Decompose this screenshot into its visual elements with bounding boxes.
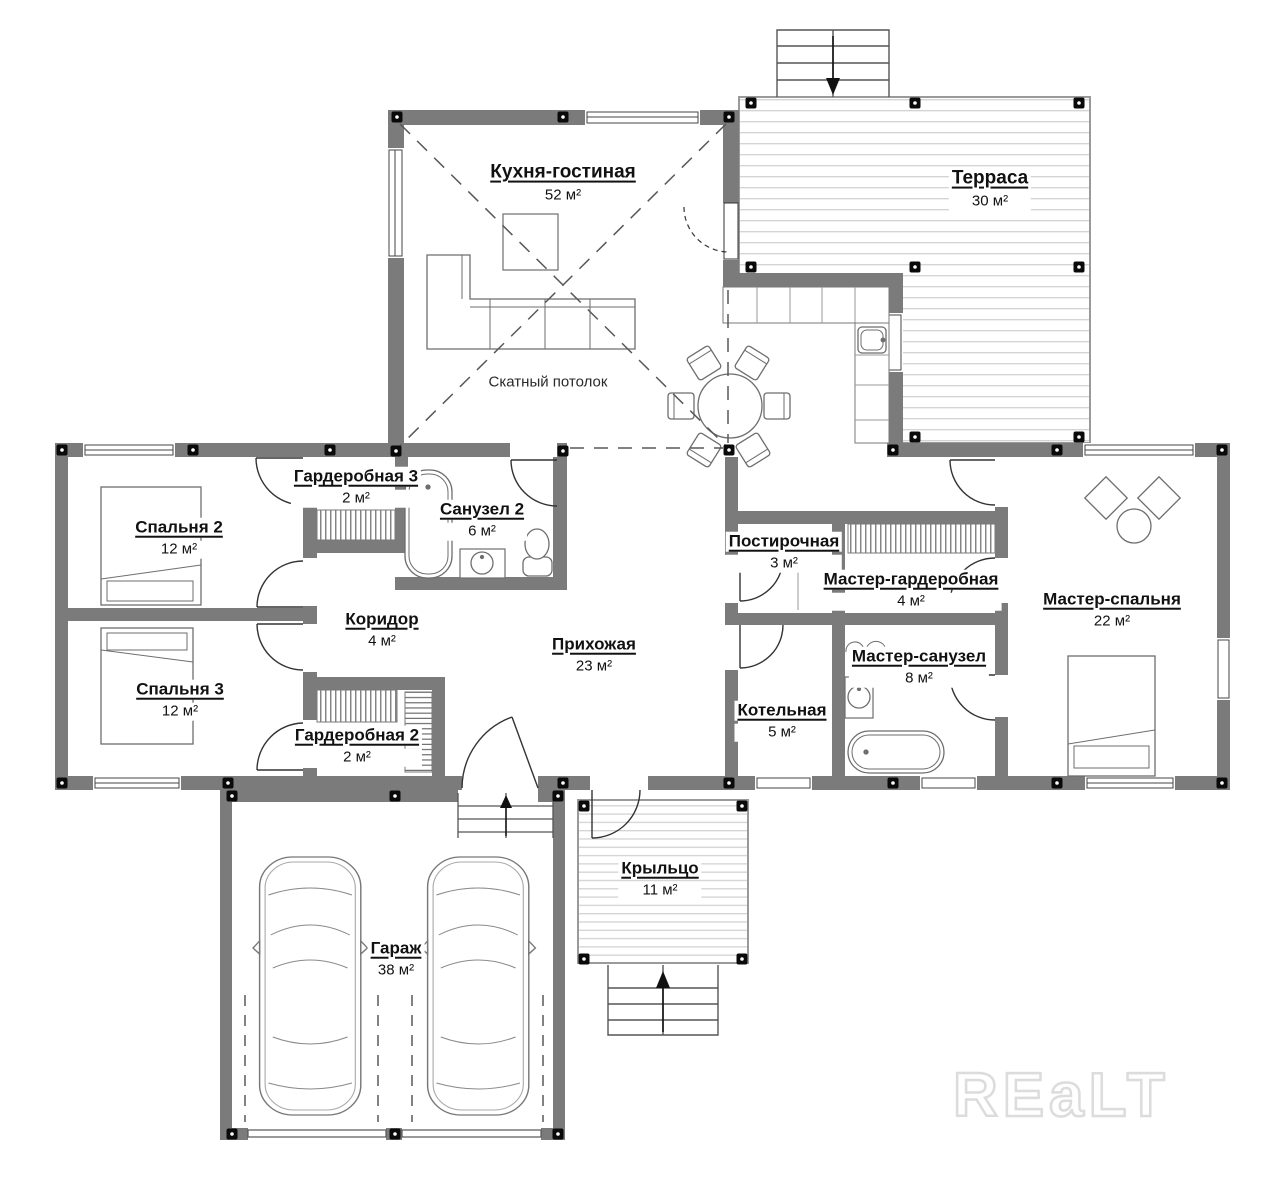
- chair-icon: [668, 393, 694, 419]
- window: [1216, 638, 1231, 700]
- room-label-kitchen-living: Кухня-гостиная 52 м²: [487, 162, 639, 205]
- room-label-master-wardrobe: Мастер-гардеробная 4 м²: [821, 570, 1002, 611]
- wardrobe-rail-icon: [848, 524, 995, 553]
- room-label-terrace: Терраса 30 м²: [949, 168, 1031, 211]
- window: [83, 443, 175, 457]
- door-arc: [257, 561, 303, 607]
- room-label-garage: Гараж 38 м²: [368, 939, 425, 980]
- sloped-ceiling-note: Скатный потолок: [486, 374, 611, 391]
- chair-icon: [735, 432, 771, 468]
- room-label-wardrobe3: Гардеробная 3 2 м²: [291, 467, 421, 508]
- door-arc: [684, 203, 738, 259]
- door-arc: [740, 625, 783, 668]
- room-label-master-bathroom: Мастер-санузел 8 м²: [849, 647, 989, 688]
- room-label-bedroom2: Спальня 2 12 м²: [132, 518, 226, 559]
- room-label-hallway: Прихожая 23 м²: [549, 635, 639, 676]
- wardrobe-rail-icon: [317, 510, 395, 540]
- window: [93, 776, 181, 790]
- room-label-master-bedroom: Мастер-спальня 22 м²: [1040, 590, 1184, 631]
- window: [585, 110, 700, 125]
- terrace-stairs-icon: [777, 30, 889, 97]
- window: [920, 776, 977, 790]
- porch-stairs-icon: [608, 965, 718, 1035]
- side-table-icon: [1117, 509, 1151, 543]
- room-label-bedroom3: Спальня 3 12 м²: [133, 680, 227, 721]
- room-label-corridor: Коридор 4 м²: [342, 610, 421, 651]
- room-label-boiler: Котельная 5 м²: [734, 701, 829, 742]
- door-arc: [257, 624, 303, 670]
- floor-plan: Кухня-гостиная 52 м² Терраса 30 м² Спаль…: [0, 0, 1280, 1185]
- window: [1085, 776, 1175, 790]
- room-label-wardrobe2: Гардеробная 2 2 м²: [292, 726, 422, 767]
- room-label-laundry: Постирочная 3 м²: [726, 532, 842, 573]
- room-label-porch: Крыльцо 11 м²: [618, 859, 701, 900]
- chair-icon: [686, 345, 722, 381]
- bathtub-icon: [848, 731, 944, 773]
- window: [1083, 443, 1195, 457]
- toilet-icon: [523, 529, 552, 576]
- wardrobe-rail-icon: [317, 690, 397, 722]
- sink-icon: [460, 549, 505, 578]
- bed-icon: [1068, 656, 1155, 776]
- door-arc: [950, 460, 995, 505]
- window: [755, 776, 812, 790]
- door-arc: [462, 717, 538, 788]
- chair-icon: [1085, 477, 1127, 519]
- room-label-bathroom2: Санузел 2 6 м²: [437, 500, 527, 541]
- coffee-table-icon: [503, 214, 558, 270]
- watermark-logo: REaLT: [953, 1060, 1170, 1131]
- chair-icon: [764, 393, 790, 419]
- window: [387, 148, 404, 258]
